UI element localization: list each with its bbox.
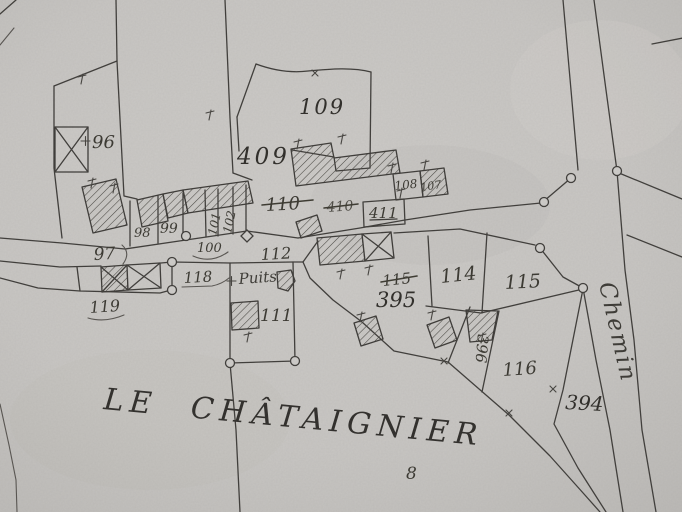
cadastral-map: 96 109 409 110 410 108 107 411 112 97 98…	[0, 0, 682, 512]
cadastral-map-sheet: 96 109 409 110 410 108 107 411 112 97 98…	[0, 0, 682, 512]
paper-texture	[0, 0, 682, 512]
